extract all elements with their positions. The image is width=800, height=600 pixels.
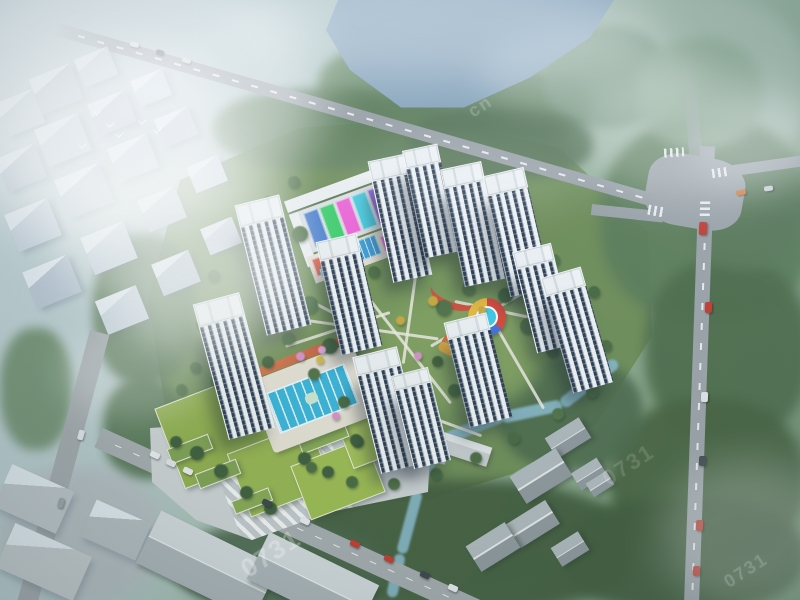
fog-patch — [480, 30, 700, 120]
fog-layer — [0, 0, 800, 600]
fog-patch — [0, 0, 320, 250]
fog-patch — [230, 0, 660, 80]
fog-patch — [690, 100, 800, 190]
fog-patch — [0, 40, 240, 230]
fog-patch — [120, 230, 310, 360]
fog-patch — [60, 160, 310, 330]
fog-patch — [60, 320, 210, 420]
fog-patch — [330, 130, 590, 220]
aerial-rendering: 0731 cn 0731 0731 — [0, 0, 800, 600]
fog-patch — [660, 460, 800, 600]
fog-patch — [580, 70, 800, 200]
